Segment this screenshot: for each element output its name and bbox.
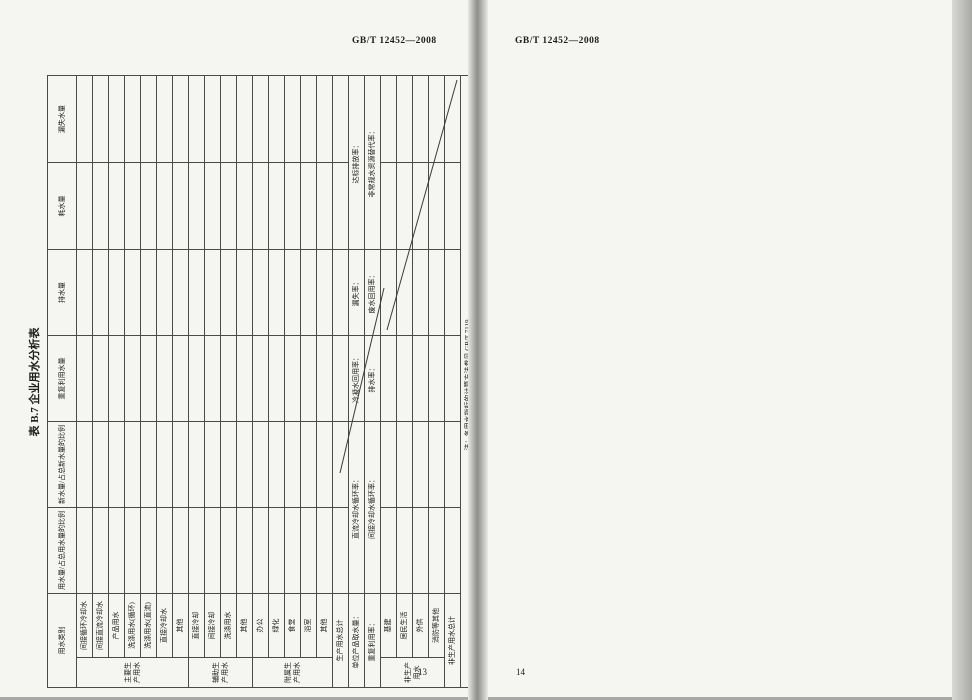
row-label: 其他 [317, 594, 333, 658]
empty-cell [77, 76, 93, 163]
table-row: 辅助生产用水 直接冷却 [189, 76, 205, 688]
total-production-row: 生产用水总计 [333, 76, 349, 688]
table-row: 直接冷却水 [157, 76, 173, 688]
table-title: 表 B.7 企业用水分析表 [25, 76, 47, 688]
rate-cell: 达标排放率： [349, 76, 365, 250]
row-label: 间接冷却 [205, 594, 221, 658]
group-label: 附属生产用水 [253, 658, 333, 688]
row-label: 其他 [173, 594, 189, 658]
rate-cell: 排水率： [365, 336, 381, 422]
empty-cell [77, 336, 93, 422]
row-label: 直接冷却 [189, 594, 205, 658]
document-viewer: { "left_page": { "header": "GB/T 12452—2… [0, 0, 972, 700]
group-label: 辅助生产用水 [189, 658, 253, 688]
empty-cell [77, 422, 93, 508]
group-label: 主要生产用水 [77, 658, 189, 688]
table-row: 产品用水 [109, 76, 125, 688]
row-label: 间接直流冷却水 [93, 594, 109, 658]
empty-cell [77, 508, 93, 594]
rate-cell: 废水回用率： [365, 250, 381, 336]
table-row: 其他 [173, 76, 189, 688]
rotated-table-block: 表 B.7 企业用水分析表 用水类别 用水量/占总用水量的比例 新水量/占总新水… [25, 76, 461, 688]
table-row: 浴室 [301, 76, 317, 688]
row-label: 洗涤用水(循环) [125, 594, 141, 658]
col-header: 用水量/占总用水量的比例 [48, 508, 77, 594]
col-header: 重复利用水量 [48, 336, 77, 422]
page-13: GB/T 12452—2008 13 表 B.7 企业用水分析表 用水类别 用水… [0, 0, 468, 697]
rate-cell: 重复利用率： [365, 594, 381, 688]
row-label: 居民生活 [397, 594, 413, 658]
running-header-left: GB/T 12452—2008 [352, 36, 437, 46]
row-label: 间接循环冷却水 [77, 594, 93, 658]
header-row: 用水类别 用水量/占总用水量的比例 新水量/占总新水量的比例 重复利用水量 排水… [48, 76, 77, 688]
table-row: 消防等其他 [429, 76, 445, 688]
empty-cell [77, 163, 93, 250]
table-row: 洗涤用水(循环) [125, 76, 141, 688]
rate-cell: 漏失率： [349, 250, 365, 336]
col-header: 排水量 [48, 250, 77, 336]
table-row: 主要生产用水 间接循环冷却水 [77, 76, 93, 688]
group-label: 非生产用水 [381, 658, 445, 688]
table-row: 其他 [317, 76, 333, 688]
table-row: 洗涤用水(直流) [141, 76, 157, 688]
water-analysis-table: 用水类别 用水量/占总用水量的比例 新水量/占总新水量的比例 重复利用水量 排水… [47, 75, 477, 688]
row-label: 洗涤用水(直流) [141, 594, 157, 658]
row-label: 办公 [253, 594, 269, 658]
table-row: 其他 [237, 76, 253, 688]
row-label: 食堂 [285, 594, 301, 658]
row-label: 其他 [237, 594, 253, 658]
total-nonproduction-row: 非生产用水总计 [445, 76, 461, 688]
rate-cell: 单位产品取水量： [349, 594, 365, 688]
rate-cell: 直流冷却水循环率： [349, 422, 365, 594]
row-label: 产品用水 [109, 594, 125, 658]
page-14: GB/T 12452—2008 14 附 录 C （资料性附录） 水平衡方框图示… [488, 0, 952, 697]
row-label: 洗涤用水 [221, 594, 237, 658]
rate-cell: 非常规水资源替代率： [365, 76, 381, 250]
row-label: 直接冷却水 [157, 594, 173, 658]
table-row: 居民生活 [397, 76, 413, 688]
table-row: 非生产用水 基建 [381, 76, 397, 688]
total-label: 非生产用水总计 [445, 594, 461, 688]
table-row: 洗涤用水 [221, 76, 237, 688]
running-header-right: GB/T 12452—2008 [515, 36, 600, 46]
rate-row-1: 单位产品取水量： 直流冷却水循环率： 冷凝水回用率： 漏失率： 达标排放率： [349, 76, 365, 688]
table-row: 间接直流冷却水 [93, 76, 109, 688]
row-label: 浴室 [301, 594, 317, 658]
page-gutter [468, 0, 488, 700]
table-row: 绿化 [269, 76, 285, 688]
table-row: 间接冷却 [205, 76, 221, 688]
page-number-right: 14 [516, 667, 525, 677]
col-header: 用水类别 [48, 594, 77, 688]
total-label: 生产用水总计 [333, 594, 349, 688]
table-row: 附属生产用水 办公 [253, 76, 269, 688]
right-edge-shadow [952, 0, 972, 700]
rate-cell: 冷凝水回用率： [349, 336, 365, 422]
rate-row-2: 重复利用率： 间接冷却水循环率： 排水率： 废水回用率： 非常规水资源替代率： [365, 76, 381, 688]
rate-cell: 间接冷却水循环率： [365, 422, 381, 594]
row-label: 消防等其他 [429, 594, 445, 658]
col-header: 新水量/占总新水量的比例 [48, 422, 77, 508]
col-header: 耗水量 [48, 163, 77, 250]
table-row: 食堂 [285, 76, 301, 688]
col-header: 漏失水量 [48, 76, 77, 163]
empty-cell [77, 250, 93, 336]
row-label: 基建 [381, 594, 397, 658]
row-label: 外供 [413, 594, 429, 658]
row-label: 绿化 [269, 594, 285, 658]
table-row: 外供 [413, 76, 429, 688]
